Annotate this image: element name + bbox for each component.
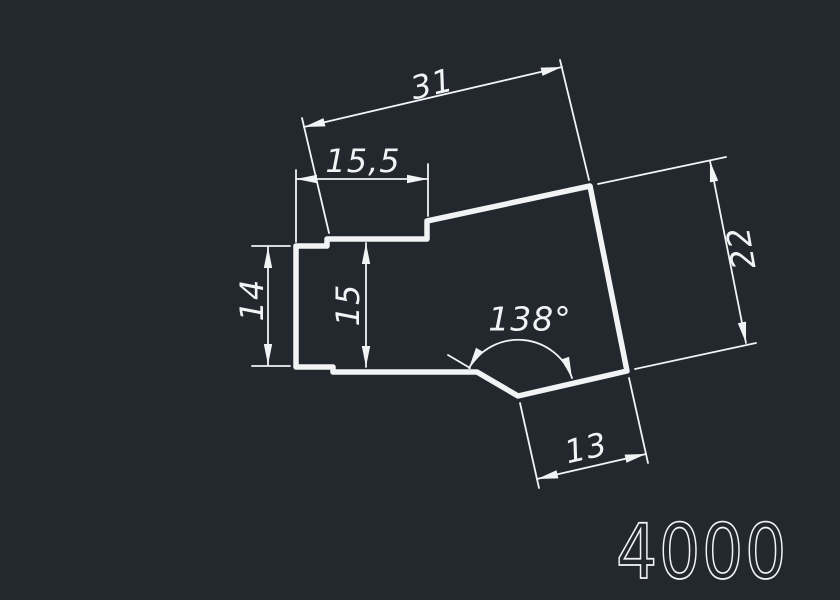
dim-label: 15 [329, 284, 367, 327]
dim-label: 15,5 [325, 142, 400, 180]
dim-label: 14 [233, 279, 271, 322]
cad-viewport: 31 15,5 14 15 138° [0, 0, 840, 600]
dim-label: 22 [719, 224, 764, 273]
cad-drawing: 31 15,5 14 15 138° [0, 0, 840, 600]
dim-label: 138° [488, 300, 572, 339]
part-number: 4000 [616, 507, 788, 596]
